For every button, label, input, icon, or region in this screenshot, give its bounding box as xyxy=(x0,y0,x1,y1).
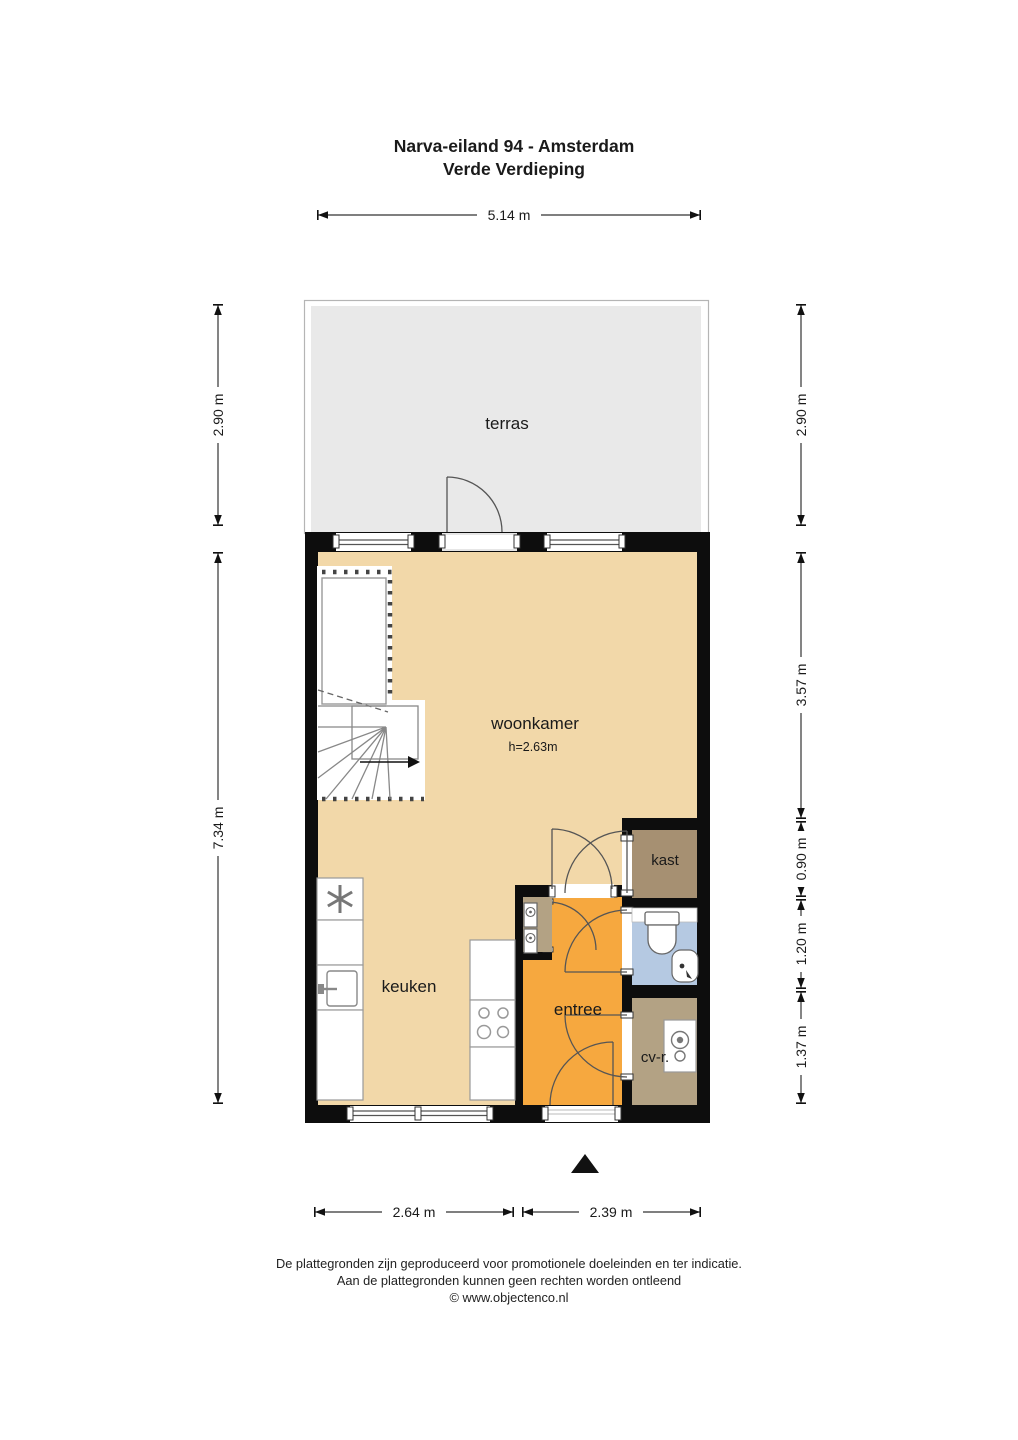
floorplan-svg: Narva-eiland 94 - Amsterdam Verde Verdie… xyxy=(0,0,1018,1440)
title-floor: Verde Verdieping xyxy=(443,159,585,179)
north-arrow-icon xyxy=(571,1154,599,1173)
dim-right-2: 3.57 m xyxy=(793,664,809,707)
window-top-2 xyxy=(547,533,622,551)
cv-label: cv-r. xyxy=(641,1049,669,1066)
counter-right-1 xyxy=(470,940,515,1000)
footer-disclaimer: De plattegronden zijn geproduceerd voor … xyxy=(276,1256,742,1305)
counter-right-3 xyxy=(470,1047,515,1100)
wall-bath-cv-divider xyxy=(632,985,710,998)
dim-right-5: 1.37 m xyxy=(793,1026,809,1069)
plan-title: Narva-eiland 94 - Amsterdam Verde Verdie… xyxy=(394,136,635,179)
title-address: Narva-eiland 94 - Amsterdam xyxy=(394,136,635,156)
room-terras: terras xyxy=(305,301,709,534)
counter-left-4 xyxy=(317,1010,363,1100)
kast-label: kast xyxy=(651,852,679,869)
footer-line-2: Aan de plattegronden kunnen geen rechten… xyxy=(337,1273,681,1288)
stair-lower xyxy=(317,700,425,800)
entree-label: entree xyxy=(554,1000,602,1019)
footer-line-1: De plattegronden zijn geproduceerd voor … xyxy=(276,1256,742,1271)
toilet-icon xyxy=(645,912,679,954)
woonkamer-label: woonkamer xyxy=(490,714,579,733)
dim-right-3: 0.90 m xyxy=(793,838,809,881)
terras-door-opening xyxy=(442,533,517,551)
dim-right-1: 2.90 m xyxy=(793,394,809,437)
dim-bottom-left: 2.64 m xyxy=(393,1204,436,1220)
cv-door-opening xyxy=(622,1014,632,1078)
dim-left-bottom: 7.34 m xyxy=(210,807,226,850)
dim-top: 5.14 m xyxy=(488,207,531,223)
woonkamer-height-label: h=2.63m xyxy=(509,740,558,754)
dim-right-4: 1.20 m xyxy=(793,923,809,966)
wall-entree-left xyxy=(515,885,523,1113)
counter-hob xyxy=(470,1000,515,1047)
floorplan-page: Narva-eiland 94 - Amsterdam Verde Verdie… xyxy=(0,0,1018,1440)
meterkast xyxy=(523,897,552,953)
bathroom-door-opening xyxy=(622,909,632,973)
keuken-label: keuken xyxy=(382,977,437,996)
footer-line-3: © www.objectenco.nl xyxy=(450,1290,569,1305)
window-top-1 xyxy=(336,533,411,551)
terras-label: terras xyxy=(485,414,528,433)
counter-left-2 xyxy=(317,920,363,965)
corner-sink-icon xyxy=(672,950,698,982)
stair-void xyxy=(322,578,386,704)
entree-door-opening xyxy=(552,884,614,898)
wall-kast-top xyxy=(622,818,710,830)
dim-bottom-right: 2.39 m xyxy=(590,1204,633,1220)
wall-left xyxy=(305,532,318,1123)
dim-left-top: 2.90 m xyxy=(210,394,226,437)
